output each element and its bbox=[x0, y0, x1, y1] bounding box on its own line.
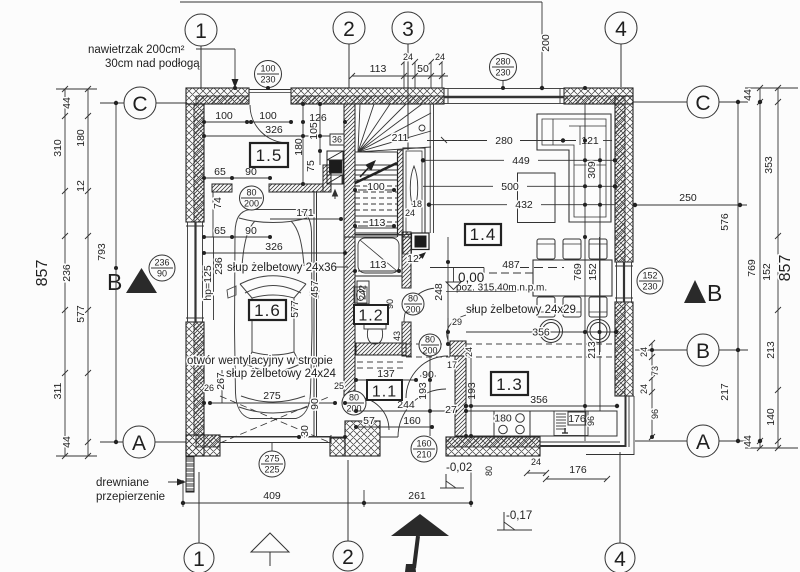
svg-text:80: 80 bbox=[408, 294, 418, 304]
svg-text:44: 44 bbox=[742, 435, 754, 447]
svg-text:326: 326 bbox=[265, 124, 283, 136]
svg-text:356: 356 bbox=[532, 327, 550, 339]
svg-text:4: 4 bbox=[615, 18, 627, 41]
svg-text:137: 137 bbox=[377, 368, 395, 380]
svg-text:100: 100 bbox=[259, 110, 277, 122]
svg-text:otwór wentylacyjny w stropie: otwór wentylacyjny w stropie bbox=[187, 355, 333, 367]
svg-text:140: 140 bbox=[765, 408, 777, 426]
svg-text:309: 309 bbox=[586, 161, 598, 179]
svg-text:310: 310 bbox=[52, 139, 64, 157]
svg-text:1.6: 1.6 bbox=[254, 301, 281, 320]
svg-text:1.1: 1.1 bbox=[372, 384, 397, 401]
svg-text:769: 769 bbox=[746, 259, 758, 277]
svg-text:36: 36 bbox=[332, 135, 342, 145]
svg-text:57: 57 bbox=[363, 415, 375, 427]
svg-text:857: 857 bbox=[34, 260, 51, 287]
svg-text:-0,02: -0,02 bbox=[446, 462, 472, 474]
svg-text:250: 250 bbox=[679, 192, 697, 204]
svg-text:267: 267 bbox=[215, 372, 227, 390]
svg-text:80: 80 bbox=[349, 393, 359, 403]
svg-text:75: 75 bbox=[305, 160, 317, 172]
svg-text:356: 356 bbox=[530, 394, 548, 406]
svg-text:236: 236 bbox=[213, 257, 225, 275]
svg-text:100: 100 bbox=[367, 181, 385, 193]
svg-text:44: 44 bbox=[61, 97, 73, 109]
svg-text:230: 230 bbox=[642, 282, 657, 292]
svg-text:1.2: 1.2 bbox=[358, 308, 383, 325]
svg-text:210: 210 bbox=[416, 450, 431, 460]
svg-text:576: 576 bbox=[719, 213, 731, 231]
svg-text:152: 152 bbox=[587, 263, 599, 281]
svg-text:90: 90 bbox=[157, 269, 167, 279]
svg-text:457: 457 bbox=[309, 280, 321, 298]
svg-text:180: 180 bbox=[75, 129, 87, 147]
svg-text:432: 432 bbox=[515, 199, 533, 211]
svg-text:B: B bbox=[707, 280, 722, 306]
svg-text:577: 577 bbox=[289, 300, 301, 318]
svg-text:100: 100 bbox=[260, 64, 275, 74]
svg-text:409: 409 bbox=[263, 490, 281, 502]
svg-text:176: 176 bbox=[569, 464, 587, 476]
svg-text:236: 236 bbox=[61, 264, 73, 282]
svg-text:171: 171 bbox=[296, 207, 314, 219]
svg-text:160: 160 bbox=[416, 439, 431, 449]
svg-text:29: 29 bbox=[452, 317, 462, 327]
svg-text:200: 200 bbox=[422, 346, 437, 356]
svg-text:200: 200 bbox=[244, 199, 259, 209]
svg-text:105: 105 bbox=[308, 122, 320, 140]
svg-text:27: 27 bbox=[445, 404, 457, 416]
svg-text:449: 449 bbox=[512, 155, 530, 167]
svg-text:353: 353 bbox=[763, 156, 775, 174]
svg-text:4: 4 bbox=[614, 548, 626, 571]
svg-text:65: 65 bbox=[214, 166, 226, 178]
svg-text:C: C bbox=[695, 92, 710, 115]
svg-text:44: 44 bbox=[742, 89, 754, 101]
svg-text:1.3: 1.3 bbox=[496, 375, 523, 394]
svg-text:236: 236 bbox=[154, 258, 169, 268]
svg-text:113: 113 bbox=[370, 63, 387, 75]
svg-text:3: 3 bbox=[402, 18, 414, 41]
svg-text:326: 326 bbox=[265, 241, 283, 253]
svg-text:100: 100 bbox=[215, 110, 233, 122]
svg-text:193: 193 bbox=[417, 382, 429, 400]
svg-text:30: 30 bbox=[299, 425, 311, 437]
svg-text:1: 1 bbox=[193, 548, 205, 571]
svg-text:113: 113 bbox=[369, 217, 386, 229]
svg-text:12: 12 bbox=[407, 253, 419, 265]
svg-text:1.5: 1.5 bbox=[256, 146, 283, 165]
svg-text:769: 769 bbox=[572, 263, 584, 281]
svg-text:213: 213 bbox=[765, 341, 777, 359]
svg-text:74: 74 bbox=[212, 197, 224, 209]
svg-text:311: 311 bbox=[52, 382, 64, 399]
svg-text:200: 200 bbox=[540, 34, 552, 52]
svg-text:96: 96 bbox=[586, 416, 596, 426]
svg-text:24: 24 bbox=[531, 457, 541, 467]
svg-text:80: 80 bbox=[425, 335, 435, 345]
svg-text:2: 2 bbox=[343, 18, 355, 41]
svg-text:24: 24 bbox=[435, 52, 445, 62]
svg-text:90: 90 bbox=[422, 369, 434, 381]
svg-text:73: 73 bbox=[650, 366, 660, 376]
svg-text:17: 17 bbox=[447, 360, 457, 370]
svg-text:2: 2 bbox=[342, 546, 354, 569]
svg-text:C: C bbox=[132, 93, 147, 116]
svg-text:przepierzenie: przepierzenie bbox=[96, 491, 165, 503]
svg-text:280: 280 bbox=[495, 135, 513, 147]
svg-text:słup żelbetowy 24x24: słup żelbetowy 24x24 bbox=[226, 368, 337, 380]
svg-text:225: 225 bbox=[264, 465, 279, 475]
svg-text:1: 1 bbox=[195, 20, 207, 43]
svg-text:577: 577 bbox=[75, 305, 87, 323]
svg-text:275: 275 bbox=[264, 454, 279, 464]
svg-text:B: B bbox=[696, 340, 710, 363]
svg-text:80: 80 bbox=[484, 466, 494, 476]
svg-text:25: 25 bbox=[334, 381, 344, 391]
svg-text:24: 24 bbox=[405, 208, 415, 218]
svg-text:hp=125: hp=125 bbox=[202, 265, 214, 300]
svg-text:176: 176 bbox=[568, 413, 586, 425]
svg-text:12: 12 bbox=[75, 180, 87, 192]
svg-text:242: 242 bbox=[358, 285, 368, 300]
svg-text:80: 80 bbox=[246, 188, 256, 198]
svg-text:24: 24 bbox=[639, 384, 649, 394]
svg-text:43: 43 bbox=[392, 331, 402, 341]
svg-text:26: 26 bbox=[204, 383, 214, 393]
svg-text:217: 217 bbox=[719, 383, 731, 401]
svg-text:24: 24 bbox=[403, 52, 413, 62]
svg-text:24: 24 bbox=[639, 347, 649, 357]
svg-text:248: 248 bbox=[433, 283, 445, 301]
svg-text:180: 180 bbox=[494, 413, 512, 425]
svg-text:1.4: 1.4 bbox=[470, 225, 497, 244]
svg-text:126: 126 bbox=[309, 112, 327, 124]
svg-text:drewniane: drewniane bbox=[96, 477, 149, 489]
svg-text:200: 200 bbox=[346, 404, 361, 414]
svg-text:65: 65 bbox=[214, 225, 226, 237]
svg-text:90: 90 bbox=[309, 398, 321, 410]
svg-text:90: 90 bbox=[245, 225, 257, 237]
svg-text:280: 280 bbox=[495, 57, 510, 67]
svg-text:261: 261 bbox=[408, 490, 426, 502]
svg-text:487: 487 bbox=[502, 259, 520, 271]
svg-text:193: 193 bbox=[466, 382, 478, 400]
svg-text:A: A bbox=[132, 432, 146, 455]
svg-text:230: 230 bbox=[495, 68, 510, 78]
svg-text:słup żelbetowy 24x36: słup żelbetowy 24x36 bbox=[227, 262, 337, 274]
svg-text:857: 857 bbox=[777, 255, 794, 282]
svg-text:152: 152 bbox=[642, 271, 657, 281]
svg-text:44: 44 bbox=[61, 436, 73, 448]
svg-text:211: 211 bbox=[392, 132, 409, 144]
svg-text:500: 500 bbox=[501, 181, 519, 193]
svg-text:113: 113 bbox=[370, 259, 387, 271]
svg-text:50: 50 bbox=[417, 63, 429, 75]
svg-text:nawietrzak 200cm²: nawietrzak 200cm² bbox=[88, 44, 185, 56]
svg-text:-0,17: -0,17 bbox=[506, 510, 532, 522]
svg-text:152: 152 bbox=[761, 263, 773, 281]
svg-text:160: 160 bbox=[403, 415, 421, 427]
svg-text:275: 275 bbox=[263, 390, 281, 402]
svg-text:słup żelbetowy 24x29: słup żelbetowy 24x29 bbox=[466, 304, 576, 316]
svg-text:793: 793 bbox=[96, 243, 108, 261]
svg-text:213: 213 bbox=[586, 341, 598, 359]
svg-text:96: 96 bbox=[650, 409, 660, 419]
svg-text:30cm nad podłogą: 30cm nad podłogą bbox=[105, 58, 200, 70]
svg-text:A: A bbox=[696, 431, 710, 454]
svg-text:24: 24 bbox=[464, 347, 474, 357]
svg-text:200: 200 bbox=[405, 305, 420, 315]
svg-text:B: B bbox=[107, 269, 122, 295]
svg-text:230: 230 bbox=[260, 75, 275, 85]
